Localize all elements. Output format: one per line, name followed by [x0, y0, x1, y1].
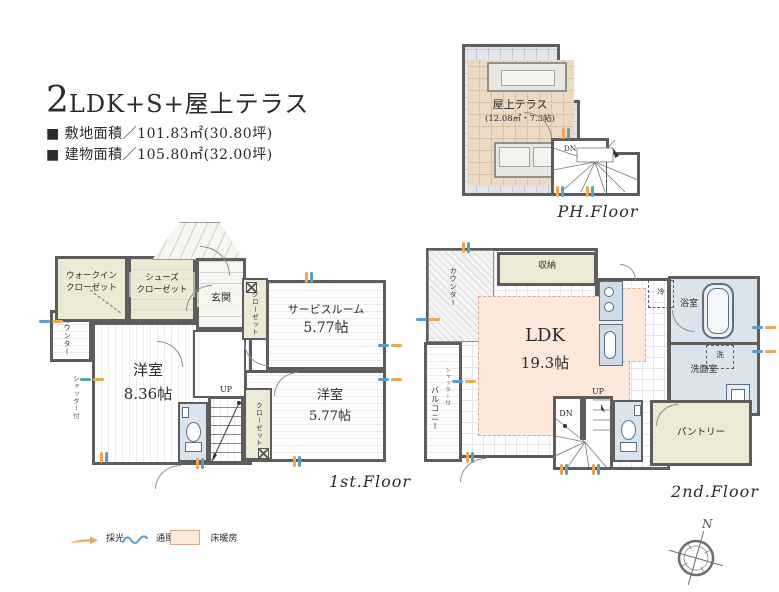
- balcony-shutter-note: シャッター付: [442, 360, 450, 412]
- stair-arrow-icon: [211, 453, 217, 463]
- daylight-arrow-icon: [586, 186, 589, 197]
- terrace-table-left: [499, 147, 530, 167]
- ventilation-arrow-icon: [565, 464, 568, 475]
- daylight-arrow-icon: [391, 344, 402, 347]
- bedroom-main-size: 8.36帖: [124, 385, 172, 403]
- compass-icon: N: [658, 512, 734, 588]
- ldk-name: LDK: [525, 325, 565, 346]
- daylight-legend-icon: [70, 534, 98, 546]
- terrace-area-label: (12.08㎡・7.3帖): [460, 113, 580, 125]
- window-marker: [39, 320, 63, 323]
- toilet-bowl: [621, 420, 636, 440]
- ventilation-arrow-icon: [298, 456, 301, 467]
- stove-burner: [604, 302, 614, 312]
- daylight-arrow-icon: [562, 128, 565, 139]
- floor-heating-kitchen: [622, 288, 646, 362]
- ventilation-arrow-icon: [80, 378, 91, 381]
- title-number: 2: [46, 80, 69, 121]
- daylight-arrow-icon: [52, 320, 63, 323]
- kitchen-door-arc: [620, 264, 636, 280]
- stair-arrow-icon: [613, 148, 619, 158]
- closet-bedroom-label: クローゼット: [253, 396, 262, 452]
- ventilation-arrow-icon: [561, 186, 564, 197]
- page-title: 2LDK+S+屋上テラス: [46, 80, 309, 121]
- bedroom-second-name: 洋室: [317, 388, 343, 403]
- ventilation-arrow-icon: [471, 452, 474, 463]
- bathtub-inner: [707, 288, 729, 334]
- ldk-size: 19.3帖: [521, 354, 569, 372]
- daylight-arrow-icon: [429, 318, 440, 321]
- ventilation-arrow-icon: [752, 326, 763, 329]
- toilet-tank: [620, 442, 637, 452]
- closet-hall-label: クローゼット: [249, 288, 258, 338]
- toilet-2f: [613, 400, 643, 462]
- ventilation-arrow-icon: [591, 186, 594, 197]
- bedroom-second-size: 5.77帖: [309, 409, 351, 424]
- stove-burner: [604, 287, 614, 297]
- ldk-label: LDK19.3帖: [498, 322, 592, 376]
- daylight-arrow-icon: [765, 350, 776, 353]
- floorplan-page: 2LDK+S+屋上テラス ■ 敷地面積／101.83㎡(30.80坪) ■ 建物…: [0, 0, 779, 592]
- toilet-bowl: [186, 422, 201, 442]
- window-marker: [100, 452, 108, 463]
- window-marker: [462, 242, 470, 253]
- entrance-porch: [152, 222, 244, 260]
- window-marker: [452, 380, 476, 383]
- ventilation-arrow-icon: [416, 318, 427, 321]
- daylight-arrow-icon: [556, 186, 559, 197]
- toilet-cistern: [182, 407, 189, 418]
- window-marker: [80, 378, 104, 381]
- window-marker: [560, 464, 568, 475]
- toilet-cistern: [634, 405, 641, 416]
- ventilation-arrow-icon: [201, 458, 204, 469]
- terrace-name-label: 屋上テラス: [464, 97, 576, 113]
- window-marker: [305, 272, 313, 283]
- service-room-name: サービスルーム: [268, 302, 384, 318]
- window-marker: [586, 186, 594, 197]
- daylight-arrow-icon: [196, 458, 199, 469]
- ph-dn-label: DN: [556, 144, 584, 155]
- window-marker: [752, 350, 776, 353]
- washer-label: 洗: [706, 350, 734, 361]
- second-floor-label: 2nd.Floor: [660, 480, 770, 503]
- ventilation-arrow-icon: [597, 464, 600, 475]
- ventilation-legend-icon: [122, 535, 148, 545]
- ventilation-arrow-icon: [452, 380, 463, 383]
- daylight-arrow-icon: [592, 464, 595, 475]
- first-floor-label: 1st.Floor: [320, 470, 420, 493]
- daylight-arrow-icon: [462, 242, 465, 253]
- storage-label: 収納: [498, 260, 596, 273]
- ph-floor-label: PH.Floor: [548, 200, 648, 223]
- ventilation-arrow-icon: [378, 378, 389, 381]
- balcony-label: バルコニー: [429, 368, 441, 448]
- title-text: LDK+S+屋上テラス: [69, 90, 309, 118]
- bedroom-main-name: 洋室: [133, 361, 163, 379]
- stairs-1f-arrow: [209, 397, 243, 463]
- daylight-arrow-icon: [465, 380, 476, 383]
- daylight-arrow-icon: [305, 272, 308, 283]
- terrace-bench: [487, 62, 567, 92]
- ventilation-arrow-icon: [378, 344, 389, 347]
- window-marker: [466, 452, 474, 463]
- ventilation-arrow-icon: [467, 242, 470, 253]
- daylight-arrow-icon: [293, 456, 296, 467]
- floor-heating-legend-swatch: [170, 530, 200, 545]
- daylight-arrow-icon: [560, 464, 563, 475]
- daylight-arrow-icon: [466, 452, 469, 463]
- kitchen-sink: [599, 324, 623, 366]
- toilet-1f: [178, 402, 208, 462]
- ventilation-arrow-icon: [752, 350, 763, 353]
- sink-basin: [604, 331, 616, 359]
- pantry-label: パントリー: [652, 426, 750, 440]
- dn-label-2f: DN: [553, 408, 579, 420]
- compass-north-label: N: [701, 517, 713, 531]
- window-marker: [752, 326, 776, 329]
- counter-2f-label: カウンター: [448, 258, 458, 316]
- window-marker: [416, 318, 440, 321]
- bedroom-main-label: 洋室8.36帖: [98, 358, 198, 406]
- window-marker: [196, 458, 204, 469]
- service-room-size: 5.77帖: [268, 318, 384, 338]
- kitchen-stove: [599, 281, 623, 321]
- ventilation-arrow-icon: [310, 272, 313, 283]
- shutter-note-1f: シャッター付: [70, 368, 79, 426]
- stair-arrow-icon: [601, 404, 605, 412]
- daylight-arrow-icon: [765, 326, 776, 329]
- floor-heating-legend-label: 床暖房: [204, 533, 244, 546]
- daylight-arrow-icon: [93, 378, 104, 381]
- daylight-arrow-icon: [391, 378, 402, 381]
- fridge-label: 冷: [648, 287, 674, 298]
- window-marker: [592, 464, 600, 475]
- washroom-label: 洗面室: [676, 364, 732, 377]
- walk-in-closet-label: ウォークイン クローゼット: [56, 270, 127, 295]
- shoes-closet-label: シューズ クローゼット: [129, 272, 195, 297]
- building-area-line: ■ 建物面積／105.80㎡(32.00坪): [46, 144, 273, 164]
- site-area-line: ■ 敷地面積／101.83㎡(30.80坪): [46, 123, 273, 143]
- window-marker: [556, 186, 564, 197]
- ventilation-arrow-icon: [39, 320, 50, 323]
- window-marker: [378, 378, 402, 381]
- bedroom-second-label: 洋室5.77帖: [280, 386, 380, 428]
- up-label-2f: UP: [584, 386, 612, 398]
- ventilation-arrow-icon: [105, 452, 108, 463]
- window-marker: [378, 344, 402, 347]
- window-marker: [562, 128, 570, 139]
- up-label-1f: UP: [212, 384, 240, 396]
- toilet-tank: [185, 442, 202, 452]
- daylight-arrow-icon: [100, 452, 103, 463]
- terrace-bench-cushion: [501, 70, 555, 86]
- bathtub: [702, 283, 734, 339]
- window-marker: [293, 456, 301, 467]
- ventilation-arrow-icon: [567, 128, 570, 139]
- bedroom-exterior-door-arc: [155, 465, 181, 489]
